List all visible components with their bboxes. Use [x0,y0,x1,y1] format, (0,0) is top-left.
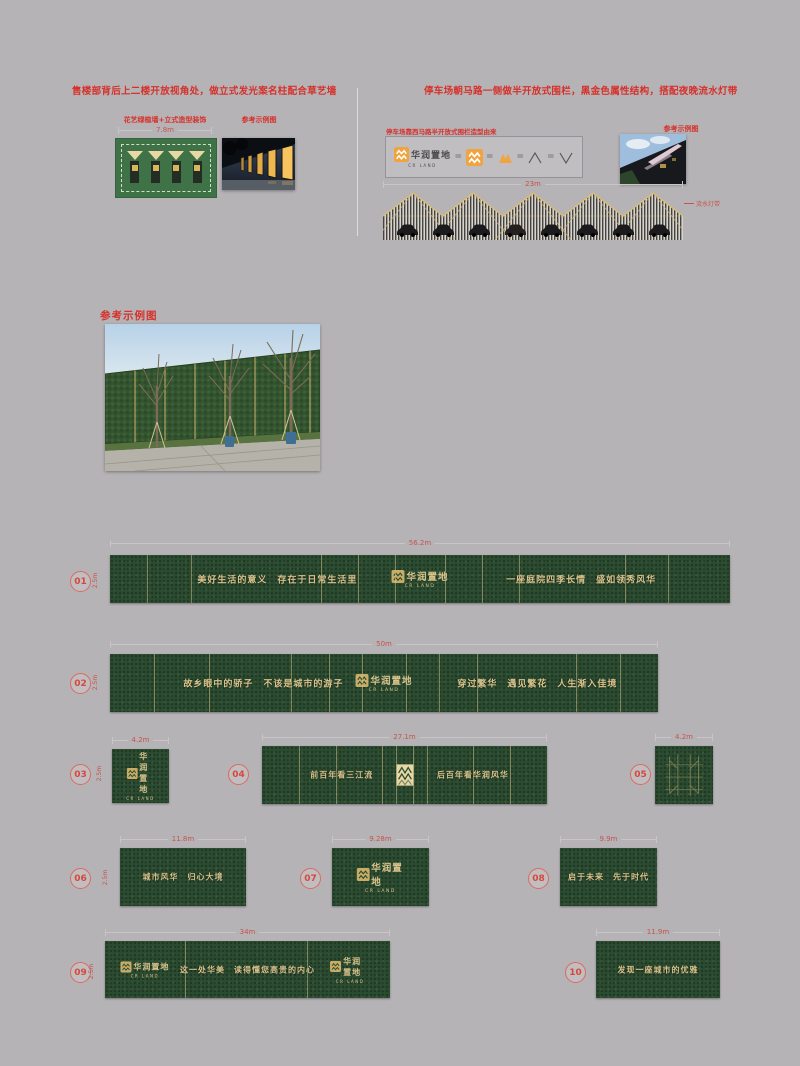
panel-seam [473,746,474,804]
equals-sign: = [547,152,555,162]
panel-seam [382,746,383,804]
panel-seam [510,746,511,804]
panel-seam [185,941,186,998]
crland-logo: 华润置地 CR LAND [355,673,412,693]
panel-seam [154,654,155,712]
chevron-down-icon [558,150,574,165]
dimension-label: 50m [372,639,396,650]
panel-seam [482,555,483,603]
parking-fence-photo [620,134,686,184]
wall-panel-06: 城市风华 归心大境 [120,848,246,906]
dimension-10: 11.9m [596,928,720,937]
diagram-inner-border [121,144,211,192]
panel-seam [576,654,577,712]
dimension-04: 27.1m [262,733,547,742]
crland-logo-cn: 华润置地 [411,148,451,161]
parking-fence-illustration [620,134,686,184]
dimension-label: 56.2m [405,538,435,549]
panel-09-center-text: 这一处华美 读得懂您高贵的内心 [180,964,315,975]
dimension-06: 11.8m [120,835,246,844]
panel-01-right-text: 一座庭院四季长情 盛如领秀风华 [506,573,656,586]
panel-04-left-text: 前百年看三江流 [310,770,373,781]
panel-seam [439,654,440,712]
monogram-badge [396,764,413,786]
wall-panel-05 [655,746,713,804]
crland-logo-row: 华润置地 [120,961,169,972]
crland-logo-en: CR LAND [131,973,159,978]
fence-elevation-diagram [383,190,683,240]
post-emblem [132,165,138,171]
wall-panel-04: 前百年看三江流 后百年看华润风华 [262,746,547,804]
panel-seam [625,555,626,603]
logo-derivation-strip: 华润置地 CR LAND = = = = [385,136,583,178]
panel-seam [519,555,520,603]
dimension-label: 7.8m [152,125,178,136]
panel-seam [336,746,337,804]
dimension-label: 4.2m [128,735,154,746]
mountain-icon [497,150,513,165]
panel-seam [307,941,308,998]
panel-06-text: 城市风华 归心大境 [143,872,224,883]
panel-08-text: 启于未来 先于时代 [568,872,649,883]
crland-logo-icon [120,961,131,972]
panel-seam [395,555,396,603]
crland-logo-en: CR LAND [408,163,436,168]
chevron-up-icon [527,150,543,165]
dimension-label: 11.9m [643,927,673,938]
item-number-01: 01 [70,571,91,592]
derivation-caption: 停车场靠西马路半开放式围栏造型由来 [386,126,497,136]
height-label-01: 2.5m [92,573,99,588]
section-divider [357,88,358,236]
panel-seam [362,654,363,712]
dimension-09: 34m [105,928,390,937]
dimension-07: 9.28m [332,835,429,844]
dimension-label: 9.28m [365,834,395,845]
crland-logo-en: CR LAND [336,979,364,984]
equals-sign: = [516,152,524,162]
crland-logo-row: 华润置地 [330,956,370,978]
dimension-label: 27.1m [389,732,419,743]
post-triangle [127,151,143,160]
crland-logo: 华润置地 CR LAND [330,956,370,984]
diagram-dimension: 7.8m [118,126,212,135]
panel-seam [445,555,446,603]
dimension-label: 34m [236,927,260,938]
crland-logo-row: 华润置地 [355,673,412,687]
panel-seam [668,555,669,603]
crland-logo-cn: 华润置地 [406,569,448,583]
post-body [193,161,202,183]
panel-seam [620,654,621,712]
post-emblem [153,165,159,171]
fence-dimension: 23m [383,180,683,189]
panel-seam [321,555,322,603]
panel-10-text: 发现一座城市的优雅 [618,964,699,975]
item-number-06: 06 [70,868,91,889]
panel-seam [147,555,148,603]
photo-caption-right: 参考示例图 [646,124,716,134]
dimension-08: 9.9m [560,835,657,844]
crland-logo-row: 华润置地 [126,751,155,795]
wall-panel-08: 启于未来 先于时代 [560,848,657,906]
post-triangle [189,151,205,160]
panel-seam [406,654,407,712]
post-emblem [194,165,200,171]
crland-logo: 华润置地 CR LAND [126,751,155,801]
dimension-label: 11.8m [168,834,198,845]
post-triangle [148,151,164,160]
crland-logo-en: CR LAND [369,688,400,693]
crland-logo: 华润置地 CR LAND [391,569,448,589]
panel-seam [427,746,428,804]
crland-logo-cn: 华润置地 [343,956,370,978]
fence-elevation-illustration [383,190,683,240]
wall-panel-07: 华润置地 CR LAND [332,848,429,906]
crland-logo-icon [330,961,341,972]
dimension-03: 4.2m [112,736,169,745]
item-number-07: 07 [300,868,321,889]
green-wall-photo [105,324,320,471]
double-m-icon [466,149,483,166]
panel-seam [329,654,330,712]
post-body [130,161,139,183]
light-post [189,151,205,183]
panel-seam [396,746,397,804]
wall-panel-01: 美好生活的意义 存在于日常生活里 华润置地 CR LAND 一座庭院四季长情 盛… [110,555,730,603]
post-triangle [168,151,184,160]
section-title-right: 停车场朝马路一侧做半开放式围栏，黑金色属性结构，搭配夜晚流水灯带 [424,83,738,97]
panel-02-right-text: 穿过繁华 遇见繁花 人生渐入佳境 [457,677,617,690]
equals-sign: = [454,152,462,162]
item-number-02: 02 [70,673,91,694]
crland-logo-en: CR LAND [365,889,396,894]
crland-logo-cn: 华润置地 [133,961,169,972]
wall-panel-02: 故乡眼中的骄子 不该是城市的游子 华润置地 CR LAND 穿过繁华 遇见繁花 … [110,654,658,712]
artistic-lettering [655,746,713,804]
dimension-label: 23m [521,179,545,190]
sign-post-diagram [115,138,217,198]
height-label-02: 2.5m [92,675,99,690]
crland-logo-icon [356,868,369,881]
diagram-caption: 花艺绿植墙+立式造型装饰 [112,115,218,125]
panel-seam [413,746,414,804]
reference-title: 参考示例图 [100,308,158,323]
post-body [151,161,160,183]
crland-logo-row: 华润置地 [356,860,405,888]
panel-seam [191,555,192,603]
wall-panel-09: 华润置地 CR LAND 这一处华美 读得懂您高贵的内心 华润置地 CR LAN… [105,941,390,998]
post-body [172,161,181,183]
dimension-01: 56.2m [110,539,730,548]
dimension-label: 4.2m [671,732,697,743]
green-wall-illustration [105,324,320,471]
crland-logo: 华润置地 CR LAND [394,147,451,168]
crland-logo: 华润置地 CR LAND [356,860,405,894]
height-label-03: 2.5m [96,766,103,781]
item-number-03: 03 [70,764,91,785]
crland-logo-cn: 华润置地 [139,751,155,795]
panel-02-left-text: 故乡眼中的骄子 不该是城市的游子 [183,677,343,690]
light-post [127,151,143,183]
wall-panel-10: 发现一座城市的优雅 [596,941,720,998]
crland-logo-en: CR LAND [126,796,154,801]
note-leader-line [684,203,694,204]
fence-note: 流水灯带 [696,199,720,208]
crland-logo: 华润置地 CR LAND [120,961,169,978]
dimension-label: 9.9m [596,834,622,845]
post-emblem [173,165,179,171]
design-sheet: 售楼部背后上二楼开放视角处，做立式发光案名柱配合草艺墙 花艺绿植墙+立式造型装饰… [0,0,800,1066]
item-number-08: 08 [528,868,549,889]
crland-logo-icon [394,147,409,162]
crland-logo-row: 华润置地 [394,147,451,162]
panel-seam [291,654,292,712]
night-columns-photo [222,138,295,190]
panel-01-left-text: 美好生活的意义 存在于日常生活里 [197,573,357,586]
crland-logo-icon [126,768,137,779]
height-label-09: 2.5m [88,964,95,979]
panel-seam [358,555,359,603]
height-label-06: 2.5m [102,870,109,885]
photo-caption-left: 参考示例图 [228,115,290,125]
item-number-05: 05 [630,764,651,785]
equals-sign: = [486,152,494,162]
panel-seam [209,654,210,712]
crland-logo-icon [391,570,404,583]
light-post [168,151,184,183]
dimension-02: 50m [110,640,658,649]
item-number-04: 04 [228,764,249,785]
crland-logo-cn: 华润置地 [371,860,405,888]
dimension-05: 4.2m [655,733,713,742]
crland-logo-row: 华润置地 [391,569,448,583]
wall-panel-03: 华润置地 CR LAND [112,749,169,803]
panel-seam [477,654,478,712]
crland-logo-en: CR LAND [405,584,436,589]
light-post [148,151,164,183]
night-columns-illustration [222,138,295,190]
item-number-10: 10 [565,962,586,983]
panel-seam [299,746,300,804]
section-title-left: 售楼部背后上二楼开放视角处，做立式发光案名柱配合草艺墙 [72,83,337,97]
